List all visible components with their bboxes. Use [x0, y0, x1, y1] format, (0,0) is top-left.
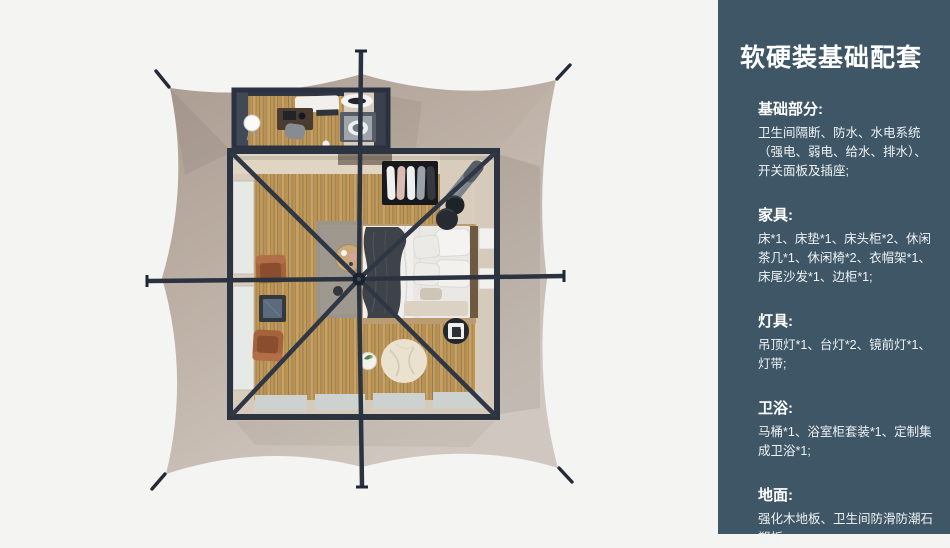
pillow [413, 235, 440, 259]
clothes-rack [382, 161, 438, 205]
pillow [413, 262, 440, 286]
tray-side-table [443, 318, 469, 344]
ridge-pole-bottom [359, 279, 362, 486]
garment [426, 166, 435, 200]
section-heading: 基础部分: [758, 98, 936, 119]
ridge-pole-top [359, 52, 361, 279]
garment [407, 166, 416, 200]
section-heading: 卫浴: [758, 397, 936, 418]
section-body: 强化木地板、卫生间防滑防潮石 塑板; [758, 510, 936, 548]
garment [386, 166, 395, 200]
headboard [470, 226, 478, 318]
section-heading: 地面: [758, 484, 936, 505]
window-panel [233, 181, 254, 274]
ridge-pole-right [359, 276, 564, 279]
spec-section-furniture: 家具: 床*1、床垫*1、床头柜*2、休闲 茶几*1、休闲椅*2、衣帽架*1、 … [758, 204, 936, 287]
panel-title: 软硬装基础配套 [740, 38, 936, 74]
stool [436, 208, 458, 230]
tray-item [349, 253, 357, 261]
wall-shadow [233, 156, 495, 160]
section-heading: 家具: [758, 204, 936, 225]
section-body: 马桶*1、浴室柜套装*1、定制集 成卫浴*1; [758, 423, 936, 461]
ridge-pole-left [148, 279, 359, 281]
nightstand-1 [479, 228, 496, 249]
pillow [435, 228, 470, 257]
info-panel: 软硬装基础配套 基础部分: 卫生间隔断、防水、水电系统 （强电、弱电、给水、排水… [718, 0, 950, 534]
garment [396, 166, 405, 200]
glass-side-table [259, 295, 286, 322]
cup [341, 250, 347, 256]
tarp-shadow-right [500, 155, 540, 414]
section-body: 吊顶灯*1、台灯*2、镜前灯*1、 灯带; [758, 336, 936, 374]
lounge-chair-2 [252, 329, 284, 362]
bed [362, 224, 478, 324]
window-panel [373, 393, 425, 409]
window-panel [233, 286, 254, 390]
desk-chair [284, 123, 306, 141]
section-body: 卫生间隔断、防水、水电系统 （强电、弱电、给水、排水）、 开关面板及插座; [758, 124, 936, 181]
spec-section-flooring: 地面: 强化木地板、卫生间防滑防潮石 塑板; [758, 484, 936, 548]
spec-section-basics: 基础部分: 卫生间隔断、防水、水电系统 （强电、弱电、给水、排水）、 开关面板及… [758, 98, 936, 181]
section-body: 床*1、床垫*1、床头柜*2、休闲 茶几*1、休闲椅*2、衣帽架*1、 床尾沙发… [758, 230, 936, 287]
bean-bag [381, 339, 427, 383]
folded-blanket [404, 301, 468, 316]
pillow [436, 259, 471, 287]
tarp-shadow-bottom [235, 421, 495, 447]
garment [416, 166, 425, 200]
window-panel [255, 395, 307, 411]
section-heading: 灯具: [758, 310, 936, 331]
bathroom-annex [234, 88, 388, 148]
window-panel [315, 394, 365, 410]
spec-section-bathroom: 卫浴: 马桶*1、浴室柜套装*1、定制集 成卫浴*1; [758, 397, 936, 461]
lumbar-pillow [420, 288, 442, 300]
toilet [341, 94, 373, 108]
spec-section-lighting: 灯具: 吊顶灯*1、台灯*2、镜前灯*1、 灯带; [758, 310, 936, 374]
